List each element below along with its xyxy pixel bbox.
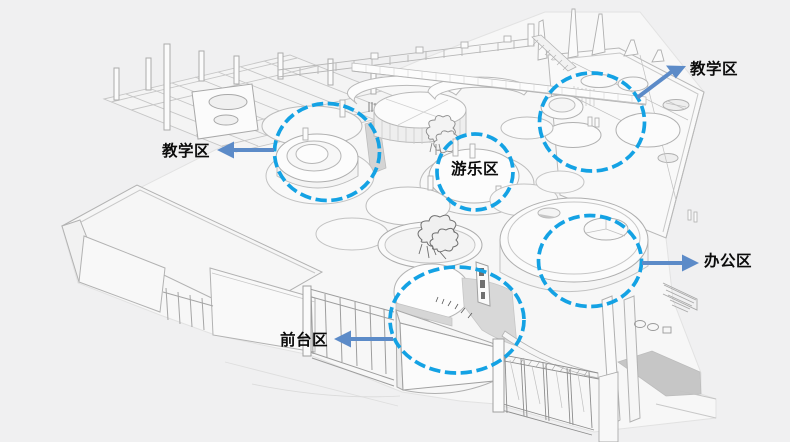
svg-text:教学区: 教学区	[690, 59, 738, 78]
svg-text:教学区: 教学区	[162, 141, 210, 160]
svg-text:办公区: 办公区	[704, 251, 752, 270]
svg-text:前台区: 前台区	[280, 330, 328, 349]
svg-text:游乐区: 游乐区	[451, 159, 499, 178]
